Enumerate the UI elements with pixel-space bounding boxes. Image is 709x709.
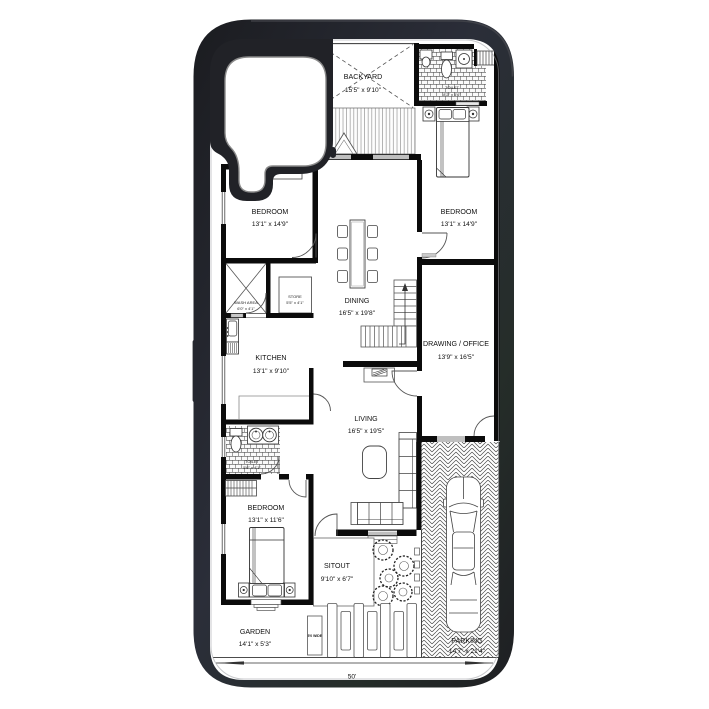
svg-text:13'1" x 14'9": 13'1" x 14'9" bbox=[441, 221, 478, 228]
svg-text:5'0 WIDE: 5'0 WIDE bbox=[308, 634, 323, 638]
svg-text:TOILET: TOILET bbox=[445, 85, 459, 90]
svg-text:PARKING: PARKING bbox=[451, 637, 482, 645]
svg-text:6'0" x 4'1": 6'0" x 4'1" bbox=[237, 306, 255, 311]
svg-text:15'5" x 9'10": 15'5" x 9'10" bbox=[345, 87, 382, 94]
svg-text:13'1" x 11'6": 13'1" x 11'6" bbox=[248, 517, 284, 524]
svg-text:DRAWING / OFFICE: DRAWING / OFFICE bbox=[423, 340, 489, 348]
svg-text:5'6" x 4'1": 5'6" x 4'1" bbox=[243, 465, 261, 470]
svg-text:BEDROOM: BEDROOM bbox=[441, 208, 478, 216]
svg-text:5'5" x 4'1": 5'5" x 4'1" bbox=[286, 300, 304, 305]
svg-text:BACKYARD: BACKYARD bbox=[344, 73, 383, 81]
svg-text:13'1" x 14'9": 13'1" x 14'9" bbox=[252, 221, 289, 228]
svg-text:14'7" x 21'4": 14'7" x 21'4" bbox=[449, 648, 486, 655]
svg-text:13'1" x 9'10": 13'1" x 9'10" bbox=[253, 368, 290, 375]
svg-text:WASH AREA: WASH AREA bbox=[234, 300, 258, 305]
svg-text:9'10" x 6'7": 9'10" x 6'7" bbox=[321, 576, 354, 583]
svg-text:16'5" x 19'8": 16'5" x 19'8" bbox=[339, 310, 376, 317]
svg-text:BEDROOM: BEDROOM bbox=[252, 208, 289, 216]
svg-text:13'9" x 16'5": 13'9" x 16'5" bbox=[438, 354, 475, 361]
svg-text:16'5" x 19'5": 16'5" x 19'5" bbox=[348, 428, 385, 435]
svg-text:DINING: DINING bbox=[345, 297, 370, 305]
svg-text:KITCHEN: KITCHEN bbox=[255, 354, 286, 362]
svg-text:14'1" x 5'3": 14'1" x 5'3" bbox=[239, 641, 272, 648]
svg-text:BEDROOM: BEDROOM bbox=[248, 504, 285, 512]
svg-text:SITOUT: SITOUT bbox=[324, 562, 351, 570]
svg-text:8'2" x 5'6": 8'2" x 5'6" bbox=[443, 92, 461, 97]
svg-text:LIVING: LIVING bbox=[354, 415, 377, 423]
svg-text:GARDEN: GARDEN bbox=[240, 628, 270, 636]
svg-text:STORE: STORE bbox=[288, 294, 302, 299]
svg-text:TOILET: TOILET bbox=[245, 459, 259, 464]
